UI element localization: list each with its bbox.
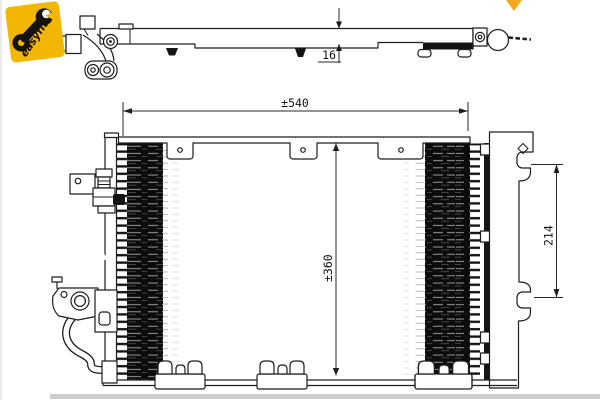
dimension-overall-width: ±540 xyxy=(123,96,468,136)
dim-mount-spacing-label: 214 xyxy=(542,225,556,246)
core-band-right xyxy=(425,144,470,381)
plate-tab xyxy=(481,353,491,364)
fin-stubs-right xyxy=(404,147,425,375)
dim-core-depth-label: 16 xyxy=(322,48,336,62)
right-mounting-plate xyxy=(490,132,534,388)
fin-comb-left xyxy=(117,144,127,381)
upper-plate-hole xyxy=(75,178,81,184)
mounting-foot-group xyxy=(155,361,472,389)
topview-right-fitting xyxy=(473,28,531,51)
easyfit-logo: easyfit xyxy=(5,1,65,63)
fin-stubs-left xyxy=(163,147,184,375)
lower-plate-hole xyxy=(61,292,67,298)
top-view-drawing: 16 xyxy=(50,8,531,79)
upper-hose-bore xyxy=(81,206,105,260)
top-bracket xyxy=(119,137,471,159)
topview-foot xyxy=(458,50,471,58)
lower-port-outer xyxy=(71,292,89,310)
drawing-svg: ±540 ±360 214 xyxy=(0,0,600,400)
outlet-fitting-lower xyxy=(52,277,117,383)
topview-core-section xyxy=(423,43,473,50)
scan-shadow-bottom xyxy=(50,394,600,399)
plate-tab xyxy=(481,144,491,155)
dim-overall-width-label: ±540 xyxy=(281,96,309,110)
dim-overall-height-label: ±360 xyxy=(321,254,335,282)
upper-fitting-plate xyxy=(70,174,95,194)
service-port-body xyxy=(98,177,110,188)
upper-fitting-base xyxy=(98,206,115,213)
topview-lug xyxy=(295,49,306,58)
dimension-mount-spacing: 214 xyxy=(531,165,563,298)
fin-comb-right xyxy=(470,144,480,381)
dimension-overall-height: ±360 xyxy=(321,144,339,376)
side-member-right xyxy=(484,143,490,380)
topview-lug xyxy=(166,48,178,56)
topview-foot xyxy=(418,50,431,58)
left-tank-cap xyxy=(105,133,119,138)
plate-tab xyxy=(481,332,491,343)
bolt-head-icon xyxy=(475,32,484,41)
service-port-cap xyxy=(96,169,112,177)
lower-port-box xyxy=(102,361,117,383)
bracket-hole xyxy=(301,148,306,153)
threaded-rod xyxy=(509,38,532,40)
watermark-arrow-fragment xyxy=(506,0,522,11)
bracket-hole xyxy=(399,148,404,153)
upper-port-black xyxy=(113,194,125,205)
scan-edge-left xyxy=(0,0,2,400)
cap-circle xyxy=(488,30,509,51)
front-view-drawing: ±540 ±360 214 xyxy=(52,96,563,389)
lower-fitting-block xyxy=(95,290,117,332)
plate-tab xyxy=(481,231,491,242)
condenser-technical-drawing: ±540 ±360 214 xyxy=(0,0,600,400)
topview-step-block xyxy=(119,24,133,29)
core-band-left xyxy=(127,144,163,381)
topview-bar-bottom xyxy=(100,43,423,49)
dimension-core-depth: 16 xyxy=(318,8,342,63)
bracket-hole xyxy=(178,148,183,153)
valve-stub-cap xyxy=(52,277,62,282)
